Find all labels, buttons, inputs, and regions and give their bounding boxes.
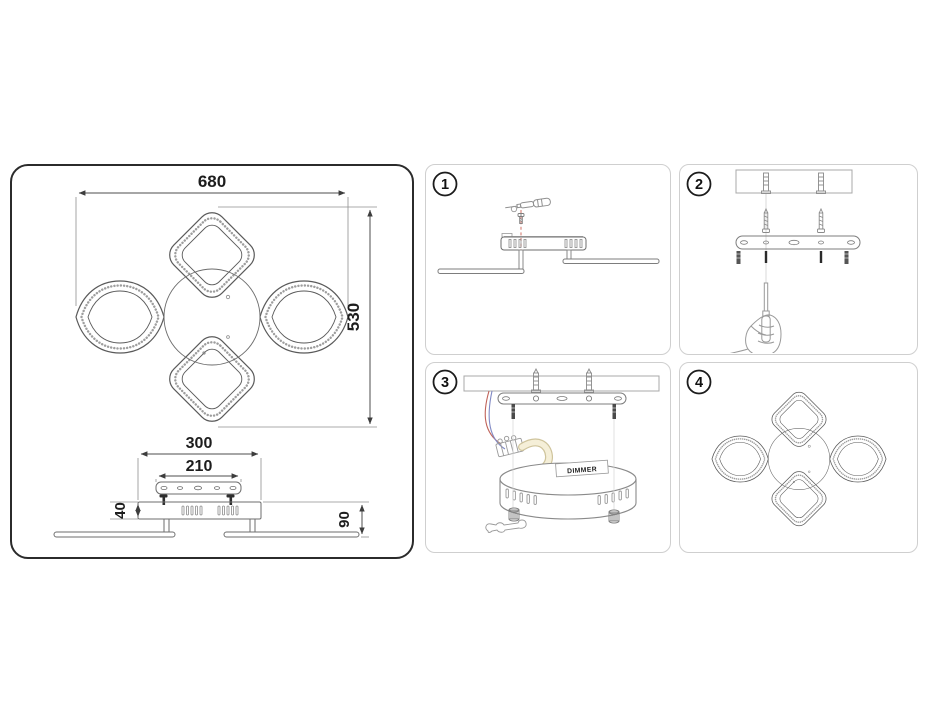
- base-vents: [509, 240, 582, 248]
- canopy-width-label: 300: [186, 435, 213, 452]
- canopy-side: [138, 502, 261, 519]
- screw-head: [586, 396, 591, 401]
- arm-stem: [519, 250, 523, 269]
- step-number-badge: 1: [434, 173, 457, 196]
- decorative-nut: [609, 510, 619, 523]
- mounting-screws: [763, 209, 825, 233]
- ceiling-surface: [464, 376, 659, 391]
- screw-head: [533, 396, 538, 401]
- ceiling-surface: [736, 170, 852, 193]
- arm-bar: [563, 259, 659, 264]
- dimension-fixture-width: [76, 193, 348, 306]
- step-number-badge: 4: [688, 371, 711, 394]
- dimension-drawing-panel: 680 530 300 210: [10, 164, 414, 559]
- bracket-width-label: 210: [186, 458, 213, 475]
- threaded-studs: [512, 404, 617, 419]
- dimension-bracket-width: [156, 476, 241, 482]
- mount-depth-label: 90: [336, 511, 353, 528]
- arm-bar: [438, 269, 524, 274]
- chandelier-side-view: [54, 482, 359, 537]
- arm-stem: [567, 250, 571, 259]
- step-3-panel: 3: [425, 362, 671, 553]
- canopy-height-label: 40: [112, 502, 129, 519]
- arm-stem: [250, 519, 255, 532]
- hanging-studs: [737, 251, 849, 264]
- mounting-screw: [818, 209, 825, 233]
- fixture-height-label: 530: [344, 303, 363, 331]
- step-4-figure: 4: [680, 363, 916, 551]
- step-number-badge: 3: [434, 371, 457, 394]
- wall-anchor: [817, 173, 826, 194]
- wall-anchor: [532, 369, 541, 393]
- step-number-badge: 2: [688, 173, 711, 196]
- canopy-vents: [182, 506, 238, 515]
- assembled-chandelier-view: [712, 389, 886, 530]
- arm-bar-right: [224, 532, 359, 537]
- wall-anchors: [532, 369, 594, 393]
- wall-anchors: [762, 173, 826, 194]
- lamp-base-side: [438, 234, 659, 274]
- mounting-plate: [156, 482, 241, 494]
- wrench-icon: [486, 520, 526, 533]
- step-2-panel: 2: [679, 164, 918, 355]
- decorative-nut: [509, 508, 519, 521]
- wall-anchor: [585, 369, 594, 393]
- step-1-figure: 1: [426, 165, 669, 353]
- arm-bar-left: [54, 532, 175, 537]
- screw-pin: [765, 251, 767, 263]
- step-4-number: 4: [695, 375, 703, 391]
- step-3-figure: 3: [426, 363, 669, 551]
- arm-stem: [164, 519, 169, 532]
- threaded-stud: [845, 251, 849, 264]
- fixture-width-label: 680: [198, 172, 226, 191]
- mounting-bracket: [736, 236, 860, 249]
- step-4-panel: 4: [679, 362, 918, 553]
- step-1-number: 1: [441, 177, 449, 193]
- screwdriver-in-hand-icon: [718, 283, 781, 353]
- wall-anchor: [762, 173, 771, 194]
- threaded-stud: [613, 404, 617, 419]
- washer: [511, 206, 516, 211]
- step-3-number: 3: [441, 375, 449, 391]
- step-2-figure: 2: [680, 165, 916, 353]
- mounting-bracket: [498, 393, 626, 404]
- step-1-panel: 1: [425, 164, 671, 355]
- screw-pin: [820, 251, 822, 263]
- threaded-stud: [512, 404, 516, 419]
- plate-screws: [160, 495, 235, 506]
- chandelier-top-view: [76, 207, 348, 427]
- threaded-stud: [737, 251, 741, 264]
- dimension-drawing: 680 530 300 210: [12, 166, 412, 557]
- step-2-number: 2: [695, 177, 703, 193]
